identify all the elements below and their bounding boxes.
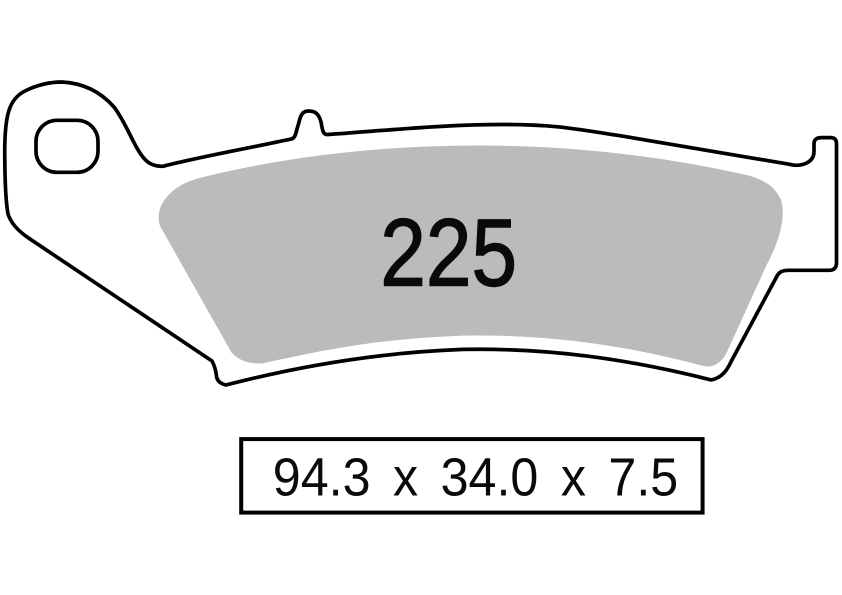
svg-text:225: 225 <box>380 199 517 306</box>
svg-text:94.3 x 34.0 x 7.5: 94.3 x 34.0 x 7.5 <box>273 448 678 508</box>
